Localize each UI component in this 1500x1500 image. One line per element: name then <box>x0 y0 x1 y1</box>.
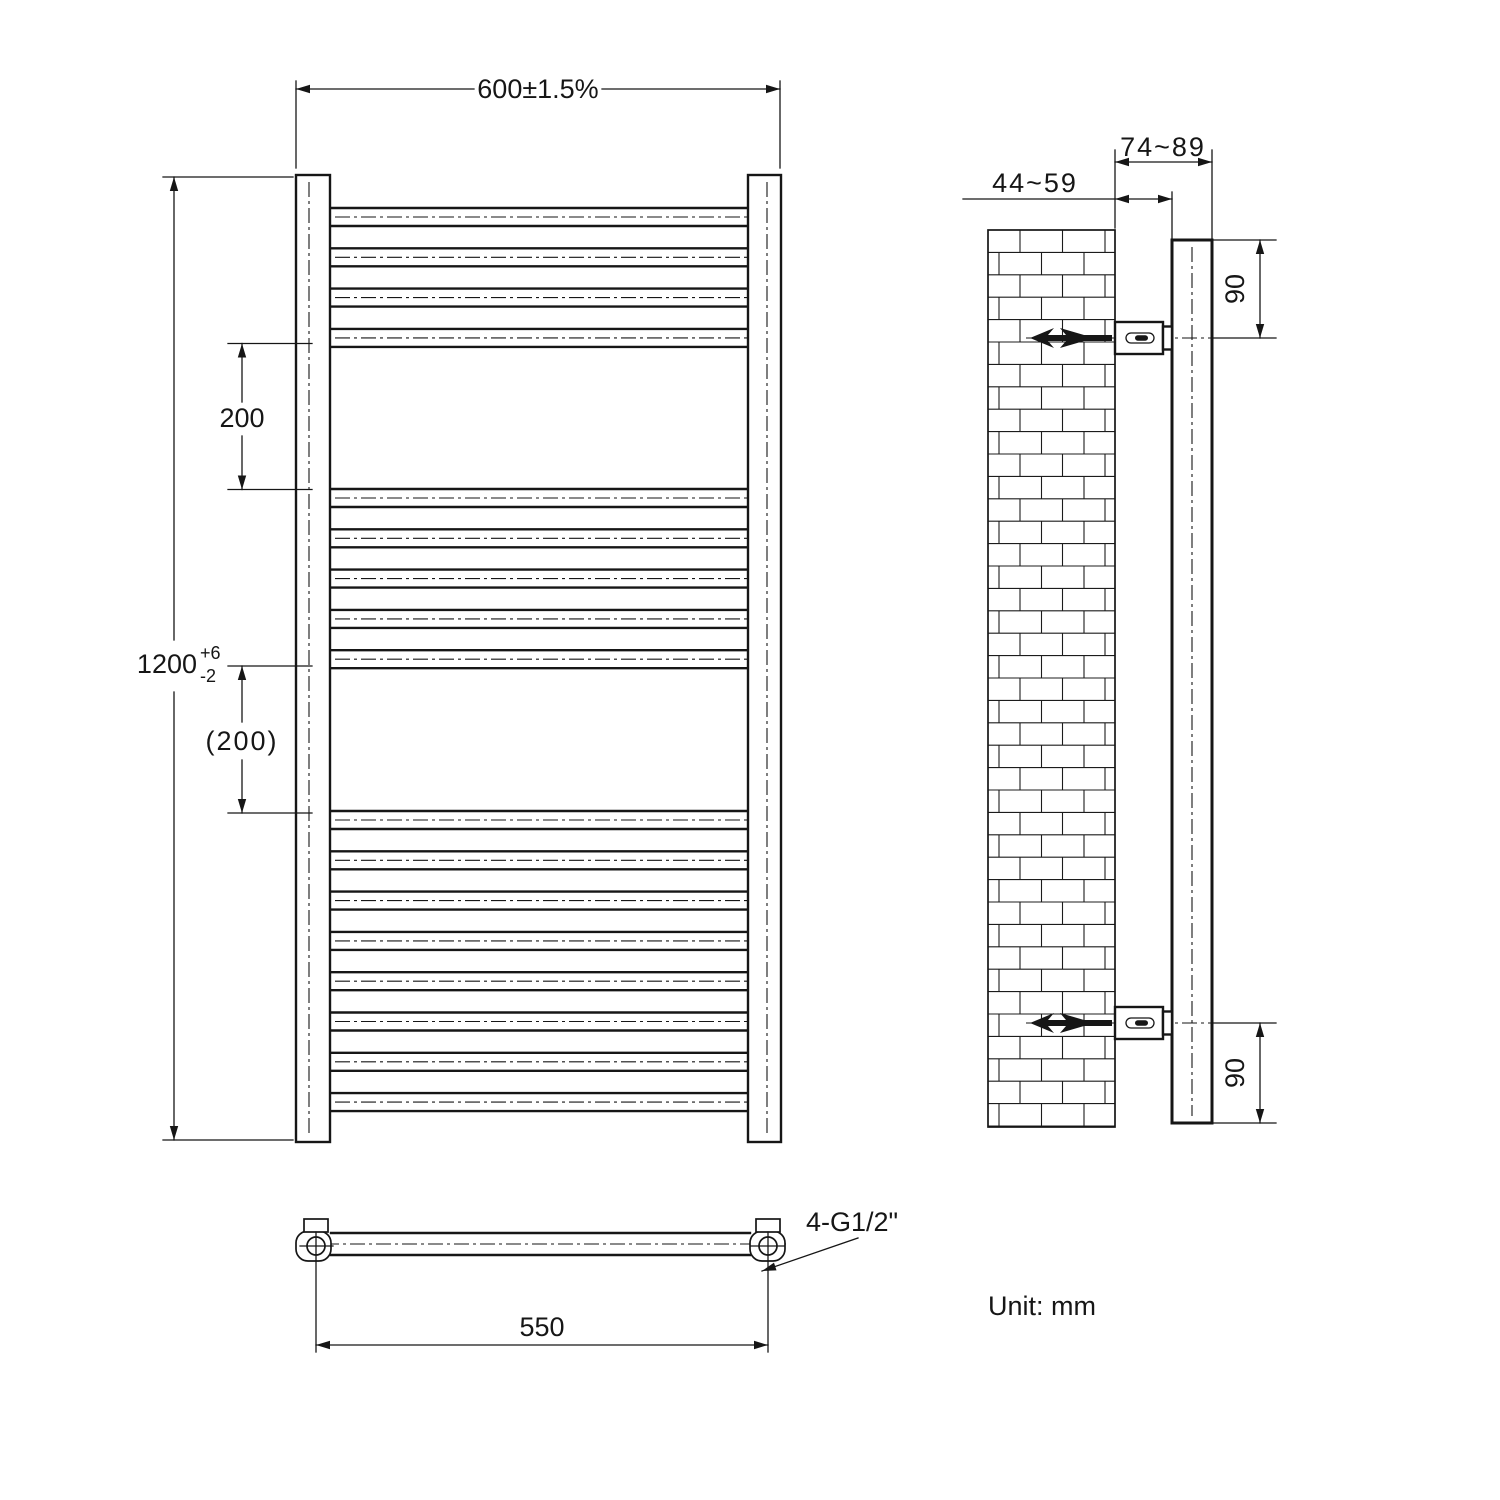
dim-600: 600±1.5% <box>296 74 780 168</box>
dim-90-bottom-label: 90 <box>1220 1058 1250 1088</box>
thread-spec-label: 4-G1/2" <box>806 1207 898 1237</box>
right-connection-fitting <box>750 1219 785 1261</box>
wall-anchor-top-icon <box>1030 328 1112 348</box>
rung-set <box>309 208 767 1111</box>
dim-90-top-label: 90 <box>1220 274 1250 304</box>
side-view: 74~89 44~59 90 90 <box>963 132 1276 1127</box>
dim-74-89-label: 74~89 <box>1120 132 1206 162</box>
dim-200-label: 200 <box>219 403 264 433</box>
left-connection-fitting <box>296 1219 333 1261</box>
technical-drawing-page: 600±1.5% 1200 +6 -2 200 <box>0 0 1500 1500</box>
dim-44-59: 44~59 <box>963 168 1172 238</box>
wall-anchor-bottom-icon <box>1030 1013 1112 1033</box>
dim-44-59-label: 44~59 <box>992 168 1078 198</box>
right-post <box>748 175 781 1142</box>
left-post <box>296 175 330 1142</box>
dim-200-ref-label: (200) <box>205 726 278 756</box>
dim-1200-label: 1200 <box>137 649 197 679</box>
bottom-view: 4-G1/2" 550 <box>296 1207 898 1352</box>
technical-drawing-canvas: 600±1.5% 1200 +6 -2 200 <box>0 0 1500 1500</box>
dim-1200-lower-tol: -2 <box>200 666 216 686</box>
dim-600-label: 600±1.5% <box>477 74 598 104</box>
dim-1200: 1200 +6 -2 <box>137 177 293 1140</box>
dim-550: 550 <box>316 1262 768 1352</box>
front-view: 600±1.5% 1200 +6 -2 200 <box>137 74 781 1142</box>
dim-90-bottom: 90 <box>1214 1023 1276 1123</box>
unit-label: Unit: mm <box>988 1291 1096 1321</box>
dim-74-89: 74~89 <box>1115 132 1212 238</box>
dim-1200-upper-tol: +6 <box>200 643 221 663</box>
dim-550-label: 550 <box>519 1312 564 1342</box>
brick-wall-hatching <box>988 230 1115 1127</box>
dim-90-top: 90 <box>1214 240 1276 338</box>
